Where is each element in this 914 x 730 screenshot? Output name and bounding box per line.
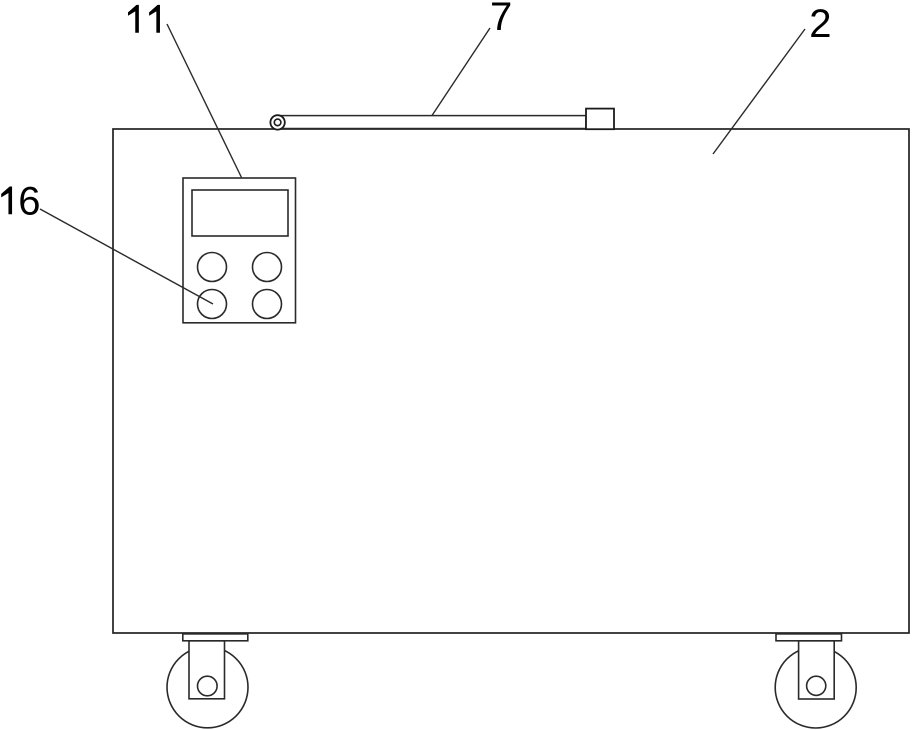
svg-text:2: 2 [809, 2, 831, 46]
svg-text:6: 6 [18, 180, 40, 224]
svg-text:7: 7 [490, 0, 512, 39]
